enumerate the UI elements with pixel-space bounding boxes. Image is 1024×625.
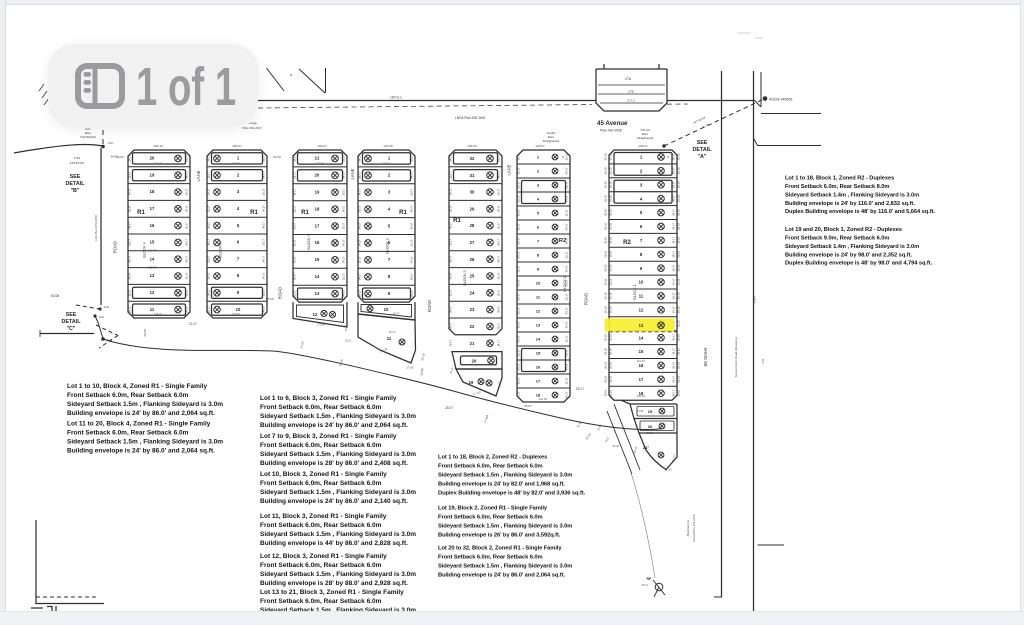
svg-text:34.17: 34.17 bbox=[409, 222, 413, 229]
svg-text:123.59: 123.59 bbox=[232, 162, 240, 166]
svg-text:25.10: 25.10 bbox=[677, 223, 681, 230]
svg-text:27B: 27B bbox=[628, 90, 633, 94]
svg-text:25.17: 25.17 bbox=[207, 255, 211, 262]
svg-text:25.10: 25.10 bbox=[677, 320, 681, 327]
svg-text:7: 7 bbox=[537, 239, 540, 244]
svg-text:25.10: 25.10 bbox=[603, 153, 607, 160]
svg-text:Straightened: Straightened bbox=[637, 136, 654, 140]
svg-text:34.17: 34.17 bbox=[564, 223, 568, 230]
svg-text:106.07: 106.07 bbox=[317, 144, 327, 148]
svg-text:34.17: 34.17 bbox=[184, 205, 188, 212]
svg-text:14: 14 bbox=[315, 274, 320, 279]
svg-text:12: 12 bbox=[313, 312, 318, 317]
svg-text:Sideyard Setback 1.5m , Flanki: Sideyard Setback 1.5m , Flanking Sideyar… bbox=[260, 531, 416, 538]
svg-text:6.54: 6.54 bbox=[74, 156, 80, 160]
svg-text:34.17: 34.17 bbox=[358, 188, 362, 195]
svg-text:Sideyard Setback 1.5m , Flanki: Sideyard Setback 1.5m , Flanking Sideyar… bbox=[438, 524, 572, 530]
svg-text:34.17: 34.17 bbox=[184, 171, 188, 178]
svg-text:34.17: 34.17 bbox=[496, 239, 500, 246]
svg-text:34.17: 34.17 bbox=[409, 171, 413, 178]
svg-text:25.17: 25.17 bbox=[496, 155, 500, 162]
svg-text:Sideyard Setback 1.5m , Flanki: Sideyard Setback 1.5m , Flanking Sideyar… bbox=[67, 439, 223, 446]
svg-text:4: 4 bbox=[237, 206, 240, 211]
svg-text:34.17: 34.17 bbox=[517, 209, 521, 216]
svg-text:25.10: 25.10 bbox=[609, 167, 613, 174]
svg-text:Lot 13 to 21, Block 3, Zoned R: Lot 13 to 21, Block 3, Zoned R1 - Single… bbox=[260, 589, 404, 596]
svg-text:LANE: LANE bbox=[350, 168, 355, 179]
svg-text:34.17: 34.17 bbox=[341, 239, 345, 246]
svg-text:21: 21 bbox=[315, 156, 320, 161]
svg-text:Front Setback 9.0m, Rear Setba: Front Setback 9.0m, Rear Setback 6.0m bbox=[785, 235, 889, 241]
svg-text:25.10: 25.10 bbox=[677, 292, 681, 299]
svg-text:35.17: 35.17 bbox=[184, 188, 188, 195]
svg-text:12: 12 bbox=[150, 290, 155, 295]
svg-text:14: 14 bbox=[150, 256, 155, 261]
svg-text:34.17: 34.17 bbox=[128, 255, 132, 262]
svg-text:19: 19 bbox=[150, 172, 155, 177]
svg-text:34.17: 34.17 bbox=[409, 205, 413, 212]
svg-text:34.17: 34.17 bbox=[671, 181, 675, 188]
svg-text:25.10: 25.10 bbox=[677, 209, 681, 216]
svg-text:34.17: 34.17 bbox=[671, 195, 675, 202]
svg-text:34.17: 34.17 bbox=[449, 323, 453, 330]
svg-text:25.17: 25.17 bbox=[564, 293, 568, 300]
svg-text:34.17: 34.17 bbox=[207, 222, 211, 229]
svg-text:Road Plan 172 2119: Road Plan 172 2119 bbox=[692, 514, 696, 541]
svg-text:34.17: 34.17 bbox=[517, 321, 521, 328]
svg-text:35.17: 35.17 bbox=[449, 205, 453, 212]
svg-text:73.59: 73.59 bbox=[637, 410, 644, 413]
svg-text:6: 6 bbox=[237, 240, 240, 245]
svg-text:35.17: 35.17 bbox=[564, 181, 568, 188]
svg-text:25.17: 25.17 bbox=[517, 167, 521, 174]
svg-text:Duplex Building envelope is 48: Duplex Building envelope is 48' by 116.0… bbox=[785, 209, 935, 215]
svg-text:25.10: 25.10 bbox=[603, 223, 607, 230]
svg-text:25.17: 25.17 bbox=[517, 391, 521, 398]
svg-text:25.10: 25.10 bbox=[603, 348, 607, 355]
svg-text:35.17: 35.17 bbox=[128, 205, 132, 212]
svg-text:29.74': 29.74' bbox=[393, 313, 400, 316]
svg-text:25.17: 25.17 bbox=[564, 153, 568, 160]
svg-text:25.10: 25.10 bbox=[677, 334, 681, 341]
svg-text:25.17: 25.17 bbox=[496, 222, 500, 229]
svg-text:69.16': 69.16' bbox=[420, 352, 426, 361]
svg-text:34.17: 34.17 bbox=[671, 223, 675, 230]
svg-text:Building envelope is 24' by 86: Building envelope is 24' by 86.0' and 2,… bbox=[260, 422, 408, 429]
svg-text:R1: R1 bbox=[399, 210, 407, 216]
svg-text:35.17: 35.17 bbox=[409, 155, 413, 162]
svg-text:10: 10 bbox=[384, 307, 389, 312]
svg-text:34.17: 34.17 bbox=[293, 188, 297, 195]
svg-text:34.17: 34.17 bbox=[358, 155, 362, 162]
svg-text:Front Setback 6.0m, Rear Setba: Front Setback 6.0m, Rear Setback 6.0m bbox=[438, 515, 543, 521]
svg-text:35.08: 35.08 bbox=[143, 329, 147, 337]
svg-text:7: 7 bbox=[388, 257, 391, 262]
svg-text:ROAD: ROAD bbox=[278, 287, 283, 299]
svg-text:R2: R2 bbox=[559, 238, 566, 244]
svg-text:6: 6 bbox=[640, 224, 643, 229]
svg-text:27: 27 bbox=[470, 240, 475, 245]
svg-text:79.63: 79.63 bbox=[498, 381, 502, 388]
svg-text:34.17: 34.17 bbox=[261, 306, 265, 313]
svg-text:8: 8 bbox=[640, 252, 643, 257]
svg-text:25.17: 25.17 bbox=[261, 289, 265, 296]
svg-text:0.02(N)x(W): 0.02(N)x(W) bbox=[80, 135, 96, 139]
svg-text:13: 13 bbox=[150, 273, 155, 278]
svg-text:25.10: 25.10 bbox=[677, 167, 681, 174]
svg-text:23: 23 bbox=[470, 307, 475, 312]
svg-text:"C": "C" bbox=[66, 326, 75, 332]
svg-text:34.17: 34.17 bbox=[261, 171, 265, 178]
svg-text:34.17: 34.17 bbox=[671, 306, 675, 313]
svg-text:31: 31 bbox=[470, 173, 475, 178]
svg-text:Fd.I: Fd.I bbox=[108, 141, 113, 145]
svg-text:10.49: 10.49 bbox=[344, 324, 348, 331]
svg-text:34.17: 34.17 bbox=[564, 265, 568, 272]
svg-text:Building envelope is 24' by 11: Building envelope is 24' by 116.0' and 2… bbox=[785, 201, 915, 207]
svg-text:34.17: 34.17 bbox=[564, 195, 568, 202]
svg-text:25.17: 25.17 bbox=[341, 273, 345, 280]
svg-text:34.17: 34.17 bbox=[671, 264, 675, 271]
svg-text:34.17: 34.17 bbox=[671, 209, 675, 216]
svg-text:25.10: 25.10 bbox=[609, 362, 613, 369]
svg-text:25.17: 25.17 bbox=[517, 265, 521, 272]
svg-text:34.17: 34.17 bbox=[128, 222, 132, 229]
svg-text:Duplex Building envelope is 48: Duplex Building envelope is 48' by 82.0'… bbox=[438, 491, 586, 497]
svg-text:9: 9 bbox=[237, 290, 240, 295]
svg-text:34.17: 34.17 bbox=[564, 363, 568, 370]
svg-text:2: 2 bbox=[388, 173, 391, 178]
svg-text:25.10: 25.10 bbox=[677, 236, 681, 243]
svg-text:23.60: 23.60 bbox=[596, 423, 603, 431]
svg-text:25.10: 25.10 bbox=[677, 153, 681, 160]
svg-text:4: 4 bbox=[640, 196, 643, 201]
svg-text:Straightened: Straightened bbox=[543, 139, 560, 143]
svg-text:10: 10 bbox=[236, 307, 241, 312]
svg-text:25.10: 25.10 bbox=[603, 375, 607, 382]
svg-text:13: 13 bbox=[536, 323, 541, 328]
svg-text:34.17: 34.17 bbox=[449, 155, 453, 162]
svg-text:17: 17 bbox=[639, 377, 644, 382]
svg-text:34.17: 34.17 bbox=[671, 292, 675, 299]
svg-text:34.17: 34.17 bbox=[671, 250, 675, 257]
svg-text:7: 7 bbox=[640, 238, 643, 243]
svg-text:DETAIL: DETAIL bbox=[65, 181, 85, 187]
svg-text:25.10: 25.10 bbox=[603, 181, 607, 188]
svg-text:14: 14 bbox=[536, 337, 541, 342]
svg-text:3: 3 bbox=[388, 189, 391, 194]
svg-text:15: 15 bbox=[639, 349, 644, 354]
svg-text:25.10: 25.10 bbox=[677, 306, 681, 313]
svg-text:15: 15 bbox=[150, 240, 155, 245]
svg-text:DETAIL: DETAIL bbox=[61, 319, 81, 325]
svg-text:41.07: 41.07 bbox=[671, 454, 676, 462]
svg-text:28: 28 bbox=[470, 223, 475, 228]
svg-text:20: 20 bbox=[315, 173, 320, 178]
svg-text:8: 8 bbox=[388, 274, 391, 279]
svg-text:...e/rtge: ...e/rtge bbox=[247, 121, 258, 125]
svg-text:35.17: 35.17 bbox=[207, 171, 211, 178]
svg-text:25.17: 25.17 bbox=[409, 188, 413, 195]
svg-text:Sideyard Setback 1.5m , Flanki: Sideyard Setback 1.5m , Flanking Sideyar… bbox=[67, 401, 223, 408]
svg-text:30: 30 bbox=[470, 190, 475, 195]
svg-text:25.07: 25.07 bbox=[445, 406, 453, 410]
svg-text:45 Avenue: 45 Avenue bbox=[597, 120, 628, 127]
svg-text:29: 29 bbox=[470, 206, 475, 211]
svg-text:9: 9 bbox=[388, 291, 391, 296]
svg-text:15: 15 bbox=[536, 351, 541, 356]
svg-text:18 P.U.L.: 18 P.U.L. bbox=[390, 96, 403, 100]
svg-text:70.75: 70.75 bbox=[701, 123, 710, 130]
svg-text:34.17: 34.17 bbox=[261, 222, 265, 229]
svg-text:35.17: 35.17 bbox=[517, 195, 521, 202]
svg-text:Plan 062 2307: Plan 062 2307 bbox=[242, 126, 262, 130]
svg-text:34.17: 34.17 bbox=[671, 167, 675, 174]
svg-text:34.17: 34.17 bbox=[207, 289, 211, 296]
svg-text:BLOCK 1: BLOCK 1 bbox=[633, 284, 637, 299]
svg-text:Building envelope is 24' by 86: Building envelope is 24' by 86.0' and 2,… bbox=[67, 448, 215, 455]
svg-text:RP: RP bbox=[647, 577, 653, 581]
svg-text:34.17: 34.17 bbox=[409, 273, 413, 280]
svg-text:M: M bbox=[290, 73, 293, 77]
svg-text:26: 26 bbox=[470, 257, 475, 262]
svg-text:123.60: 123.60 bbox=[316, 162, 324, 166]
svg-text:2: 2 bbox=[537, 169, 540, 174]
svg-text:34.17: 34.17 bbox=[564, 391, 568, 398]
svg-text:25.17: 25.17 bbox=[564, 335, 568, 342]
svg-text:34.17: 34.17 bbox=[207, 155, 211, 162]
svg-text:25.17: 25.17 bbox=[128, 289, 132, 296]
svg-text:25.10: 25.10 bbox=[609, 278, 613, 285]
svg-text:25.10: 25.10 bbox=[677, 195, 681, 202]
svg-text:34.17: 34.17 bbox=[358, 222, 362, 229]
svg-text:25.17: 25.17 bbox=[341, 155, 345, 162]
svg-text:34.17: 34.17 bbox=[517, 153, 521, 160]
svg-text:25.17: 25.17 bbox=[449, 171, 453, 178]
svg-text:34.17: 34.17 bbox=[128, 272, 132, 279]
svg-text:34.17: 34.17 bbox=[671, 348, 675, 355]
svg-text:34.17: 34.17 bbox=[564, 349, 568, 356]
svg-text:Sideyard Setback 1.5m , Flanki: Sideyard Setback 1.5m , Flanking Sideyar… bbox=[438, 564, 572, 570]
svg-text:BLOCK 4: BLOCK 4 bbox=[219, 242, 223, 257]
svg-text:Street: Street bbox=[753, 296, 757, 304]
svg-text:Lot 1 to 10, Block 4, Zoned R1: Lot 1 to 10, Block 4, Zoned R1 - Single … bbox=[67, 383, 208, 390]
svg-text:11: 11 bbox=[536, 295, 541, 300]
svg-text:25.10: 25.10 bbox=[603, 250, 607, 257]
svg-text:Lot 20 to 32, Block 2, Zoned R: Lot 20 to 32, Block 2, Zoned R1 - Single… bbox=[438, 546, 562, 552]
svg-text:25.10: 25.10 bbox=[677, 389, 681, 396]
svg-text:25.10: 25.10 bbox=[677, 250, 681, 257]
svg-text:34.17: 34.17 bbox=[517, 335, 521, 342]
svg-text:34.17: 34.17 bbox=[496, 289, 500, 296]
svg-text:x: x bbox=[667, 155, 669, 159]
svg-text:34.17: 34.17 bbox=[671, 153, 675, 160]
svg-text:123.60: 123.60 bbox=[382, 162, 390, 166]
svg-text:53.29: 53.29 bbox=[273, 155, 281, 159]
svg-text:10: 10 bbox=[639, 280, 644, 285]
svg-text:23.60: 23.60 bbox=[450, 367, 455, 374]
svg-text:19: 19 bbox=[469, 380, 474, 385]
svg-text:25.17: 25.17 bbox=[564, 377, 568, 384]
svg-text:Lot 12, Block 3, Zoned R1 - Si: Lot 12, Block 3, Zoned R1 - Single Famil… bbox=[260, 553, 387, 560]
svg-text:25.17: 25.17 bbox=[409, 239, 413, 246]
svg-text:35.17: 35.17 bbox=[293, 205, 297, 212]
svg-text:25.10: 25.10 bbox=[609, 250, 613, 257]
svg-text:25.10: 25.10 bbox=[603, 167, 607, 174]
svg-text:R1: R1 bbox=[453, 218, 461, 224]
svg-text:11: 11 bbox=[150, 307, 155, 312]
svg-text:25.10: 25.10 bbox=[677, 348, 681, 355]
svg-text:Building envelope is 28' by 88: Building envelope is 28' by 88.0' and 2,… bbox=[260, 580, 408, 587]
svg-text:25.17: 25.17 bbox=[517, 349, 521, 356]
svg-text:25.17: 25.17 bbox=[496, 323, 500, 330]
svg-text:132.04': 132.04' bbox=[539, 397, 548, 401]
svg-text:25.10: 25.10 bbox=[677, 375, 681, 382]
svg-text:34.17: 34.17 bbox=[671, 362, 675, 369]
svg-text:34.17: 34.17 bbox=[564, 321, 568, 328]
svg-text:Lot 1 to 18, Block 2, Zoned R2: Lot 1 to 18, Block 2, Zoned R2 - Duplexe… bbox=[438, 455, 547, 461]
svg-text:25.10: 25.10 bbox=[609, 236, 613, 243]
svg-text:1: 1 bbox=[640, 155, 643, 160]
svg-text:25.17: 25.17 bbox=[293, 239, 297, 246]
svg-text:25.10: 25.10 bbox=[609, 306, 613, 313]
svg-text:21.23: 21.23 bbox=[664, 468, 672, 472]
svg-text:55.06: 55.06 bbox=[299, 341, 304, 349]
svg-text:25.10: 25.10 bbox=[677, 264, 681, 271]
svg-text:ROAD: ROAD bbox=[427, 300, 432, 312]
svg-text:Lot 10, Block 3, Zoned R1 - Si: Lot 10, Block 3, Zoned R1 - Single Famil… bbox=[260, 471, 387, 478]
svg-text:34.17: 34.17 bbox=[671, 375, 675, 382]
svg-text:16: 16 bbox=[536, 365, 541, 370]
svg-text:Government Road Allowance: Government Road Allowance bbox=[734, 337, 738, 377]
svg-text:34.17: 34.17 bbox=[261, 205, 265, 212]
svg-text:25.17: 25.17 bbox=[449, 339, 453, 346]
svg-text:21: 21 bbox=[470, 341, 475, 346]
svg-text:25.17: 25.17 bbox=[517, 223, 521, 230]
svg-text:LANE: LANE bbox=[507, 164, 512, 175]
svg-text:17.50': 17.50' bbox=[406, 366, 414, 370]
svg-text:9: 9 bbox=[537, 267, 540, 272]
svg-text:Building envelope is 24' by 86: Building envelope is 24' by 86.0' and 2,… bbox=[438, 573, 565, 579]
svg-text:34.17: 34.17 bbox=[207, 272, 211, 279]
svg-text:Building envelope is 24' by 86: Building envelope is 24' by 86.0' and 2,… bbox=[67, 410, 215, 417]
svg-text:R1: R1 bbox=[137, 210, 145, 216]
svg-text:Lot 19, Block 2, Zoned R1 - Si: Lot 19, Block 2, Zoned R1 - Single Famil… bbox=[438, 506, 548, 512]
svg-text:40.50: 40.50 bbox=[585, 432, 593, 440]
svg-text:"B": "B" bbox=[70, 188, 79, 194]
svg-text:19: 19 bbox=[648, 409, 653, 414]
svg-text:3: 3 bbox=[640, 182, 643, 187]
svg-text:Front Setback 6.0m, Rear Setba: Front Setback 6.0m, Rear Setback 6.0m bbox=[260, 522, 382, 529]
svg-text:25.10: 25.10 bbox=[609, 195, 613, 202]
svg-text:25.10: 25.10 bbox=[609, 375, 613, 382]
svg-text:Lot 1 to 18, Block 1, Zoned R2: Lot 1 to 18, Block 1, Zoned R2 - Duplexe… bbox=[785, 176, 894, 182]
svg-text:25.17: 25.17 bbox=[207, 306, 211, 313]
svg-text:34.17: 34.17 bbox=[128, 188, 132, 195]
svg-text:19: 19 bbox=[315, 189, 320, 194]
svg-text:25.17: 25.17 bbox=[128, 171, 132, 178]
svg-text:BLOCK 3: BLOCK 3 bbox=[307, 234, 311, 249]
svg-text:34.17: 34.17 bbox=[496, 171, 500, 178]
svg-text:6: 6 bbox=[537, 225, 540, 230]
svg-text:25.10: 25.10 bbox=[609, 181, 613, 188]
svg-text:20: 20 bbox=[472, 359, 477, 364]
svg-text:Sideyard Setback 1.5m , Flanki: Sideyard Setback 1.5m , Flanking Sideyar… bbox=[260, 489, 416, 496]
svg-text:BLOCK 3: BLOCK 3 bbox=[386, 238, 390, 253]
svg-text:34.17: 34.17 bbox=[261, 255, 265, 262]
svg-text:34.17: 34.17 bbox=[449, 188, 453, 195]
svg-text:Lot 11, Block 3, Zoned R1 - Si: Lot 11, Block 3, Zoned R1 - Single Famil… bbox=[260, 513, 387, 520]
svg-text:25.10: 25.10 bbox=[603, 362, 607, 369]
svg-text:25.17: 25.17 bbox=[449, 239, 453, 246]
svg-text:25.10: 25.10 bbox=[603, 264, 607, 271]
svg-text:20: 20 bbox=[150, 156, 155, 161]
svg-text:104.07: 104.07 bbox=[232, 144, 242, 148]
svg-text:34.17: 34.17 bbox=[293, 273, 297, 280]
svg-text:5: 5 bbox=[640, 210, 643, 215]
svg-text:134.07: 134.07 bbox=[154, 312, 162, 316]
svg-text:20.2: 20.2 bbox=[345, 339, 351, 343]
svg-text:2: 2 bbox=[237, 172, 240, 177]
svg-text:78.74': 78.74' bbox=[389, 331, 396, 334]
svg-text:130.42: 130.42 bbox=[632, 446, 638, 455]
svg-text:68 Street: 68 Street bbox=[703, 347, 708, 366]
svg-text:104.10: 104.10 bbox=[153, 144, 163, 148]
svg-text:34.17: 34.17 bbox=[449, 306, 453, 313]
svg-text:34.17: 34.17 bbox=[517, 181, 521, 188]
svg-text:35.17: 35.17 bbox=[358, 171, 362, 178]
svg-text:ROAD: ROAD bbox=[584, 293, 589, 305]
svg-text:SEE: SEE bbox=[70, 174, 81, 180]
svg-text:177.59': 177.59' bbox=[472, 390, 482, 396]
svg-text:Sideyard Setback 1.5m , Flanki: Sideyard Setback 1.5m , Flanking Sideyar… bbox=[260, 413, 416, 420]
svg-text:34.17: 34.17 bbox=[517, 251, 521, 258]
svg-text:34.17: 34.17 bbox=[496, 255, 500, 262]
svg-text:25.17: 25.17 bbox=[564, 209, 568, 216]
svg-text:104.30: 104.30 bbox=[467, 144, 477, 148]
svg-text:LANE: LANE bbox=[196, 170, 201, 181]
svg-text:9: 9 bbox=[640, 266, 643, 271]
svg-text:Fd.I: Fd.I bbox=[99, 315, 104, 319]
svg-text:17: 17 bbox=[315, 223, 320, 228]
svg-text:BLOCK 4: BLOCK 4 bbox=[143, 242, 147, 257]
svg-text:Swale: Swale bbox=[338, 358, 344, 367]
svg-text:25.17: 25.17 bbox=[128, 239, 132, 246]
svg-text:25.10: 25.10 bbox=[609, 264, 613, 271]
svg-text:22: 22 bbox=[470, 324, 475, 329]
svg-text:Sideyard Setback 1.5m , Flanki: Sideyard Setback 1.5m , Flanking Sideyar… bbox=[260, 451, 416, 458]
svg-text:3: 3 bbox=[537, 183, 540, 188]
svg-text:12: 12 bbox=[639, 307, 644, 312]
svg-text:18: 18 bbox=[536, 393, 541, 398]
svg-text:Sideyard Setback 1.5m , Flanki: Sideyard Setback 1.5m , Flanking Sideyar… bbox=[260, 571, 416, 578]
svg-text:25.10: 25.10 bbox=[677, 181, 681, 188]
svg-text:37.47: 37.47 bbox=[612, 444, 620, 448]
svg-text:Front Setback 6.0m, Rear Setba: Front Setback 6.0m, Rear Setback 6.0m bbox=[260, 404, 382, 411]
svg-text:34.17: 34.17 bbox=[671, 334, 675, 341]
svg-text:25.10: 25.10 bbox=[609, 153, 613, 160]
svg-text:34.17: 34.17 bbox=[496, 339, 500, 346]
svg-text:Sideyard Setback 1.5m , Flanki: Sideyard Setback 1.5m , Flanking Sideyar… bbox=[438, 473, 572, 479]
svg-text:25.17: 25.17 bbox=[184, 272, 188, 279]
svg-text:25.10: 25.10 bbox=[603, 306, 607, 313]
svg-text:21.07: 21.07 bbox=[189, 322, 197, 326]
svg-text:25.10: 25.10 bbox=[603, 236, 607, 243]
svg-text:104.39: 104.39 bbox=[383, 144, 393, 148]
svg-text:34.17: 34.17 bbox=[341, 171, 345, 178]
svg-text:15: 15 bbox=[315, 257, 320, 262]
svg-text:35.17: 35.17 bbox=[496, 188, 500, 195]
